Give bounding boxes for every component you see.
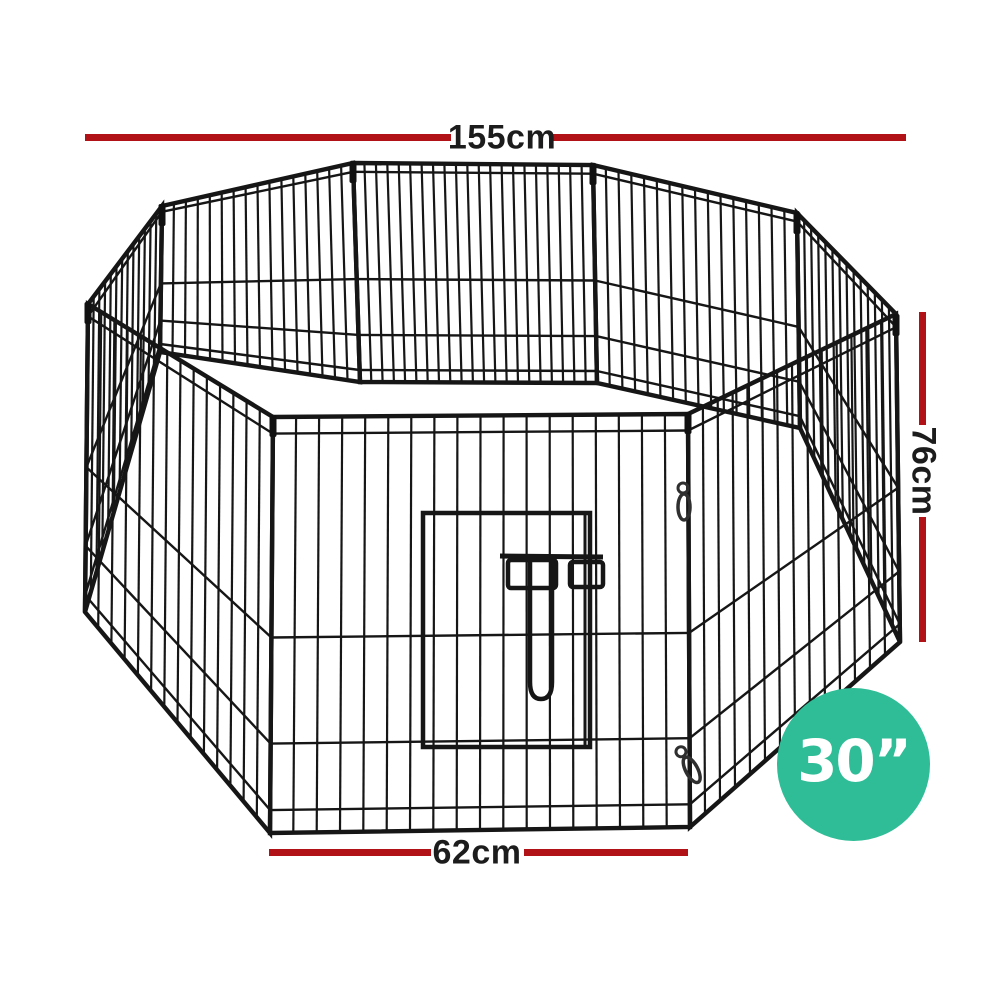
panel-back xyxy=(353,163,597,383)
panel-width-dimension-line-right xyxy=(524,849,688,856)
panel-back-left xyxy=(160,163,360,382)
width-dimension-line-right xyxy=(551,134,906,141)
panel-front-left xyxy=(85,304,273,833)
height-dimension-line-top xyxy=(919,312,926,425)
corner-joint xyxy=(794,212,801,234)
corner-joint xyxy=(590,163,597,185)
corner-joint xyxy=(685,412,692,434)
height-dimension-label: 76cm xyxy=(904,427,943,516)
panel-front xyxy=(270,414,690,833)
width-dimension-label: 155cm xyxy=(448,119,556,158)
size-badge: 30” xyxy=(777,688,930,841)
door-latch xyxy=(500,556,603,699)
panel-width-dimension-label: 62cm xyxy=(433,834,522,873)
product-dimension-diagram: 155cm 76cm 62cm 30” xyxy=(0,0,1000,1000)
front-door xyxy=(423,513,603,747)
corner-joint xyxy=(85,302,92,324)
corner-joint xyxy=(270,415,277,437)
width-dimension-line-left xyxy=(85,134,451,141)
snap-hook-clip-top xyxy=(678,483,690,520)
corner-joint xyxy=(350,161,357,183)
size-badge-label: 30” xyxy=(797,727,910,803)
panel-left xyxy=(85,206,162,612)
panel-back-right xyxy=(593,165,800,428)
corner-joint xyxy=(159,204,166,226)
corner-joint xyxy=(893,314,900,336)
panel-width-dimension-line-left xyxy=(269,849,431,856)
height-dimension-line-bottom xyxy=(919,517,926,642)
